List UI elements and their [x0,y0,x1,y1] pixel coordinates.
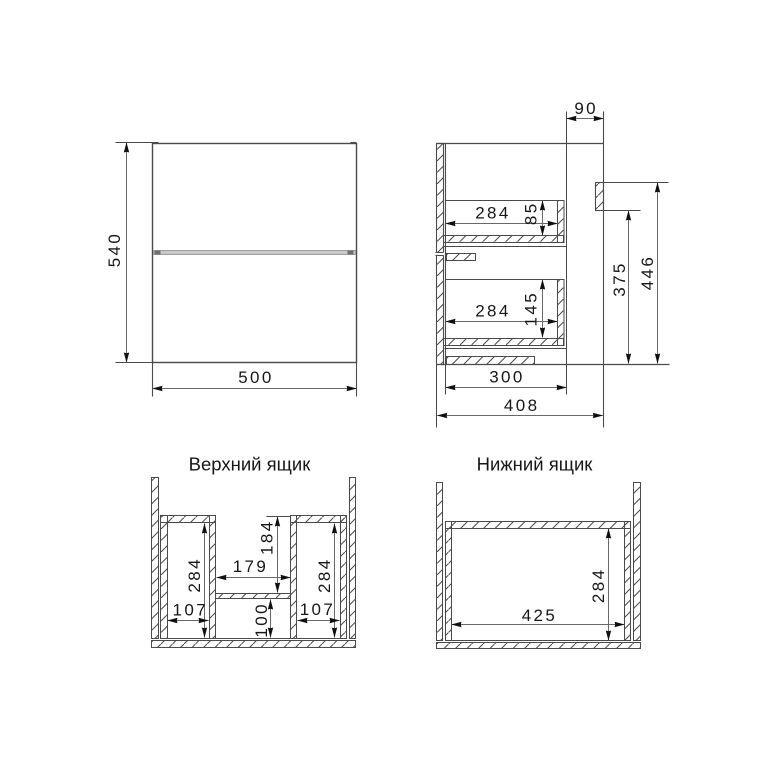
svg-text:85: 85 [521,201,540,225]
svg-text:Верхний ящик: Верхний ящик [189,454,312,475]
svg-text:284: 284 [185,557,204,593]
svg-text:184: 184 [257,519,276,555]
svg-text:540: 540 [105,232,124,268]
svg-text:375: 375 [610,261,629,297]
svg-text:284: 284 [475,302,511,321]
svg-text:500: 500 [238,368,274,387]
svg-text:446: 446 [638,255,657,291]
svg-text:425: 425 [522,606,558,625]
svg-text:300: 300 [489,367,525,386]
svg-text:145: 145 [522,291,541,327]
svg-text:284: 284 [589,568,608,604]
svg-text:107: 107 [300,600,336,619]
svg-text:Нижний ящик: Нижний ящик [477,454,594,475]
svg-text:100: 100 [252,602,271,638]
svg-text:284: 284 [475,203,511,222]
svg-text:284: 284 [315,557,334,593]
svg-text:90: 90 [574,99,598,118]
svg-text:107: 107 [173,600,209,619]
svg-text:408: 408 [504,396,540,415]
svg-text:179: 179 [233,557,269,576]
